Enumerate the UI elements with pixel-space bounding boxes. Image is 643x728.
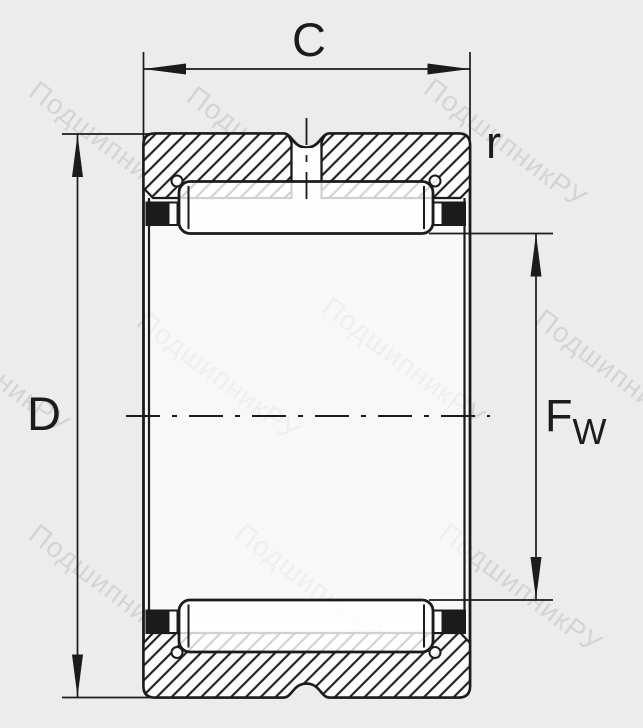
retaining-bead-bottom-left — [172, 647, 183, 658]
bearing-drawing-page: ПодшипникРУ ПодшипникРУ ПодшипникРУ Подш… — [0, 0, 643, 728]
cage-section-bottom-right-fill — [442, 611, 466, 634]
cage-section-top-right-fill — [442, 203, 466, 226]
dim-c-arrow-left — [144, 64, 187, 75]
dim-label-d: D — [27, 390, 61, 437]
dim-label-c: C — [292, 16, 326, 63]
dim-fw-arrow-top — [531, 234, 542, 277]
cage-section-top-left-fill — [147, 203, 170, 226]
needle-roller-bottom — [179, 600, 433, 652]
bearing-cross-section-drawing — [0, 0, 643, 728]
dim-label-fw-sub: W — [573, 411, 607, 452]
dim-label-fw: FW — [545, 393, 606, 450]
dim-fw-arrow-bottom — [531, 557, 542, 600]
dim-d-arrow-bottom — [72, 655, 83, 698]
cage-section-bottom-left-fill — [147, 611, 170, 634]
dim-d-arrow-top — [72, 135, 83, 178]
dim-label-r: r — [486, 120, 501, 165]
dim-label-fw-main: F — [545, 390, 573, 441]
dim-c-arrow-right — [428, 64, 471, 75]
retaining-bead-top-right — [430, 176, 441, 187]
retaining-bead-bottom-right — [430, 647, 441, 658]
retaining-bead-top-left — [172, 176, 183, 187]
